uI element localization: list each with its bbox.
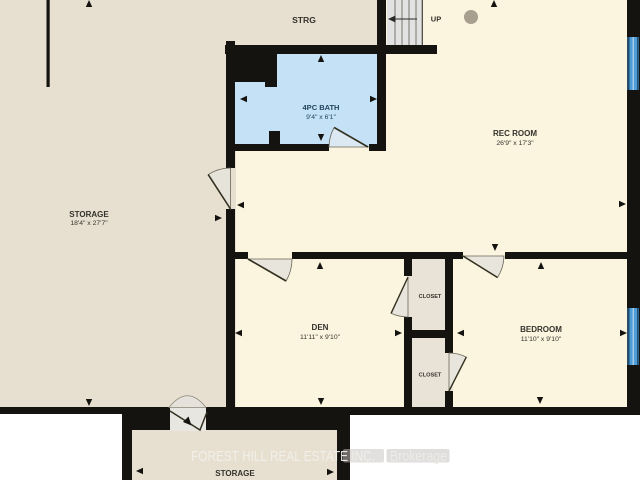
svg-text:DEN: DEN bbox=[312, 323, 329, 332]
svg-text:11'10" x 9'10": 11'10" x 9'10" bbox=[521, 336, 562, 343]
svg-text:UP: UP bbox=[431, 15, 441, 24]
svg-text:STRG: STRG bbox=[292, 15, 316, 25]
svg-text:4PC BATH: 4PC BATH bbox=[303, 103, 340, 112]
svg-text:9'4" x 6'1": 9'4" x 6'1" bbox=[306, 114, 336, 121]
svg-text:CLOSET: CLOSET bbox=[419, 294, 442, 300]
svg-text:REC ROOM: REC ROOM bbox=[493, 129, 537, 138]
svg-text:STORAGE: STORAGE bbox=[215, 469, 255, 478]
svg-text:CLOSET: CLOSET bbox=[419, 373, 442, 379]
svg-text:18'4" x 27'7": 18'4" x 27'7" bbox=[70, 220, 108, 227]
svg-text:STORAGE: STORAGE bbox=[69, 210, 109, 219]
svg-text:FOREST HILL REAL ESTATE INC.: FOREST HILL REAL ESTATE INC. bbox=[191, 448, 375, 465]
svg-text:BEDROOM: BEDROOM bbox=[520, 325, 562, 334]
svg-text:11'11" x 9'10": 11'11" x 9'10" bbox=[300, 334, 341, 341]
svg-text:26'9" x 17'3": 26'9" x 17'3" bbox=[496, 140, 534, 147]
svg-text:Brokerage: Brokerage bbox=[390, 448, 447, 465]
